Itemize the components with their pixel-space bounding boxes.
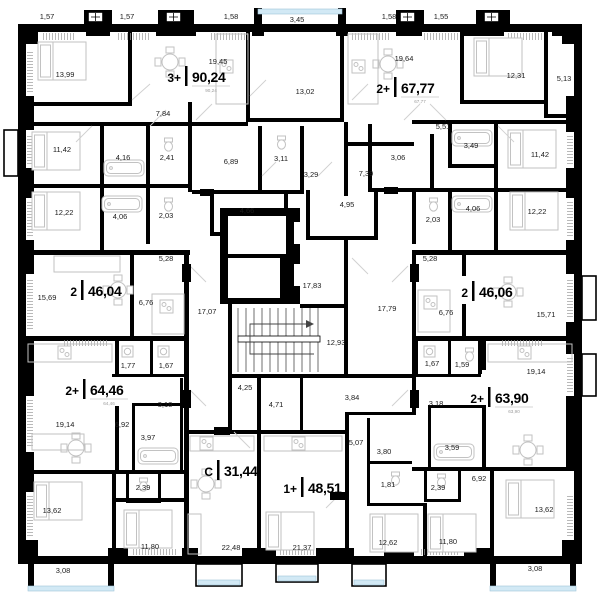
dimension-label: 1,57 (40, 12, 55, 21)
room-area-label: 6,92 (115, 420, 130, 429)
svg-text:48,51: 48,51 (308, 480, 342, 496)
room-area-label: 4,71 (269, 400, 284, 409)
room-area-label: 3,49 (464, 141, 479, 150)
stove-icon (200, 437, 213, 450)
room-area-label: 6,76 (139, 298, 154, 307)
room-area-label: 1,59 (455, 360, 470, 369)
room-area-label: 4,06 (466, 204, 481, 213)
room-area-label: 2,39 (136, 483, 151, 492)
entry-door (200, 189, 214, 196)
svg-text:C: C (204, 465, 213, 479)
room-area-label: 2,39 (431, 483, 446, 492)
room-area-label: 3,80 (377, 447, 392, 456)
apartment-label-48-51: 1+ 48,51 (283, 477, 342, 497)
bed-icon (428, 514, 476, 552)
room-area-label: 17,79 (378, 304, 397, 313)
svg-text:90,24: 90,24 (192, 69, 226, 85)
svg-text:67,77: 67,77 (401, 80, 435, 96)
room-area-label: 1,77 (121, 361, 136, 370)
entry-door (182, 390, 191, 408)
room-area-label: 4,66 (240, 206, 255, 215)
vent-plus-icon (166, 12, 181, 22)
bed-icon (508, 130, 556, 168)
room-area-label: 19,14 (56, 420, 75, 429)
svg-text:46,06: 46,06 (479, 284, 513, 300)
dining-table-icon (61, 433, 91, 463)
room-area-label: 13,99 (56, 70, 75, 79)
room-area-label: 21,37 (293, 543, 312, 552)
room-area-label: 6,92 (472, 474, 487, 483)
vent-plus-icon (88, 12, 103, 22)
svg-text:2+: 2+ (470, 392, 484, 406)
room-area-label: 19,45 (209, 57, 228, 66)
room-area-label: 3,11 (274, 154, 288, 163)
bathtub-icon (104, 160, 144, 176)
room-area-label: 1,67 (159, 361, 174, 370)
apartment-label-46-06: 2 46,06 (461, 281, 513, 301)
balcony-area-label: 3,08 (528, 564, 543, 573)
svg-text:46,04: 46,04 (88, 283, 122, 299)
room-area-label: 19,14 (527, 367, 546, 376)
svg-text:90,24: 90,24 (205, 88, 217, 93)
room-area-label: 12,31 (507, 71, 526, 80)
stove-icon (424, 296, 437, 309)
stairs (238, 308, 320, 372)
stove-icon (352, 60, 365, 73)
sofa-icon (54, 256, 120, 272)
svg-text:2+: 2+ (65, 384, 79, 398)
room-area-label: 2,03 (426, 215, 441, 224)
stove-icon (518, 346, 531, 359)
svg-text:2+: 2+ (376, 82, 390, 96)
room-area-label: 2,41 (160, 153, 175, 162)
room-area-label: 6,76 (439, 308, 454, 317)
toilet-icon (430, 198, 438, 211)
bathtub-icon (102, 196, 142, 212)
apartment-label-31-44: C 31,44 (204, 460, 258, 480)
entry-door (214, 427, 230, 435)
entry-door (410, 264, 419, 282)
room-area-label: 11,42 (531, 150, 549, 159)
room-area-label: 3,84 (345, 393, 360, 402)
toilet-icon (165, 198, 173, 211)
room-area-label: 15,69 (38, 293, 57, 302)
dining-table-icon (513, 435, 543, 465)
room-area-label: 6,89 (224, 157, 239, 166)
room-area-label: 7,39 (359, 169, 374, 178)
floor-plan: 1,57 1,57 1,58 3,45 1,58 1,55 13,99 19,4… (0, 0, 600, 600)
dimension-label: 1,57 (120, 12, 135, 21)
svg-text:31,44: 31,44 (224, 463, 258, 479)
room-area-label: 12,62 (379, 538, 398, 547)
room-area-label: 4,16 (116, 153, 131, 162)
room-area-label: 4,95 (340, 200, 355, 209)
washing-machine-icon (158, 346, 169, 357)
vent-plus-icon (400, 12, 415, 22)
dimension-label: 5,28 (423, 254, 438, 263)
balcony-area-label: 3,45 (290, 15, 305, 24)
room-area-label: 5,51 (436, 122, 451, 131)
room-area-label: 12,93 (327, 338, 346, 347)
dimension-label: 1,55 (434, 12, 449, 21)
svg-text:67,77: 67,77 (414, 99, 426, 104)
entry-door (384, 187, 398, 194)
svg-text:63,90: 63,90 (508, 409, 520, 414)
room-area-label: 4,06 (113, 212, 128, 221)
room-area-label: 22,48 (222, 543, 241, 552)
entry-door (410, 390, 419, 408)
toilet-icon (165, 138, 173, 151)
room-area-label: 11,80 (141, 542, 159, 551)
apartment-label-67-77: 2+ 67,77 67,77 (376, 77, 439, 104)
svg-text:63,90: 63,90 (495, 390, 529, 406)
stove-icon (160, 300, 173, 313)
room-area-label: 5,07 (349, 438, 364, 447)
room-area-label: 5,13 (557, 74, 572, 83)
room-area-label: 12,22 (55, 208, 74, 217)
balcony-area-label: 3,08 (56, 566, 71, 575)
washing-machine-icon (122, 346, 133, 357)
room-area-label: 7,84 (156, 109, 171, 118)
apartment-label-46-04: 2 46,04 (70, 280, 122, 300)
svg-text:2: 2 (70, 285, 77, 299)
room-area-label: 12,22 (528, 207, 547, 216)
washing-machine-icon (424, 346, 435, 357)
apartment-label-64-46: 2+ 64,46 64,46 (65, 379, 128, 406)
dimension-label: 3,18 (158, 400, 173, 409)
elevator-car (228, 258, 280, 298)
bathtub-icon (138, 448, 178, 464)
room-area-label: 17,07 (198, 307, 217, 316)
room-area-label: 3,59 (445, 443, 460, 452)
stove-icon (292, 437, 305, 450)
room-area-label: 3,97 (141, 433, 156, 442)
room-area-label: 1,67 (425, 359, 440, 368)
room-area-label: 3,29 (304, 170, 319, 179)
room-area-label: 13,62 (535, 505, 554, 514)
dimension-label: 3,18 (429, 399, 444, 408)
svg-text:64,46: 64,46 (103, 401, 115, 406)
room-area-label: 13,02 (296, 87, 315, 96)
room-area-label: 3,06 (391, 153, 406, 162)
entry-door (182, 264, 191, 282)
vent-plus-icon (484, 12, 499, 22)
elevator-block (220, 208, 302, 304)
room-area-label: 13,62 (43, 506, 62, 515)
elevator-car (228, 216, 286, 254)
dimension-label: 5,28 (159, 254, 174, 263)
apartment-label-63-90: 2+ 63,90 63,90 (470, 387, 533, 414)
svg-text:64,46: 64,46 (90, 382, 124, 398)
dimension-label: 1,58 (382, 12, 397, 21)
dimension-label: 1,58 (224, 12, 239, 21)
room-area-label: 1,81 (381, 480, 396, 489)
room-area-label: 4,25 (238, 383, 253, 392)
svg-text:2: 2 (461, 286, 468, 300)
room-area-label: 15,71 (537, 310, 556, 319)
room-area-label: 2,03 (159, 211, 174, 220)
room-area-label: 17,83 (303, 281, 322, 290)
svg-text:1+: 1+ (283, 482, 297, 496)
svg-text:3+: 3+ (167, 71, 181, 85)
toilet-icon (278, 136, 286, 149)
floor-plan-drawing: 1,57 1,57 1,58 3,45 1,58 1,55 13,99 19,4… (0, 0, 600, 600)
apartment-label-90-24: 3+ 90,24 90,24 (167, 66, 230, 93)
room-area-label: 11,80 (439, 537, 457, 546)
room-area-label: 11,42 (53, 145, 71, 154)
room-area-label: 19,64 (395, 54, 414, 63)
stove-icon (58, 346, 71, 359)
